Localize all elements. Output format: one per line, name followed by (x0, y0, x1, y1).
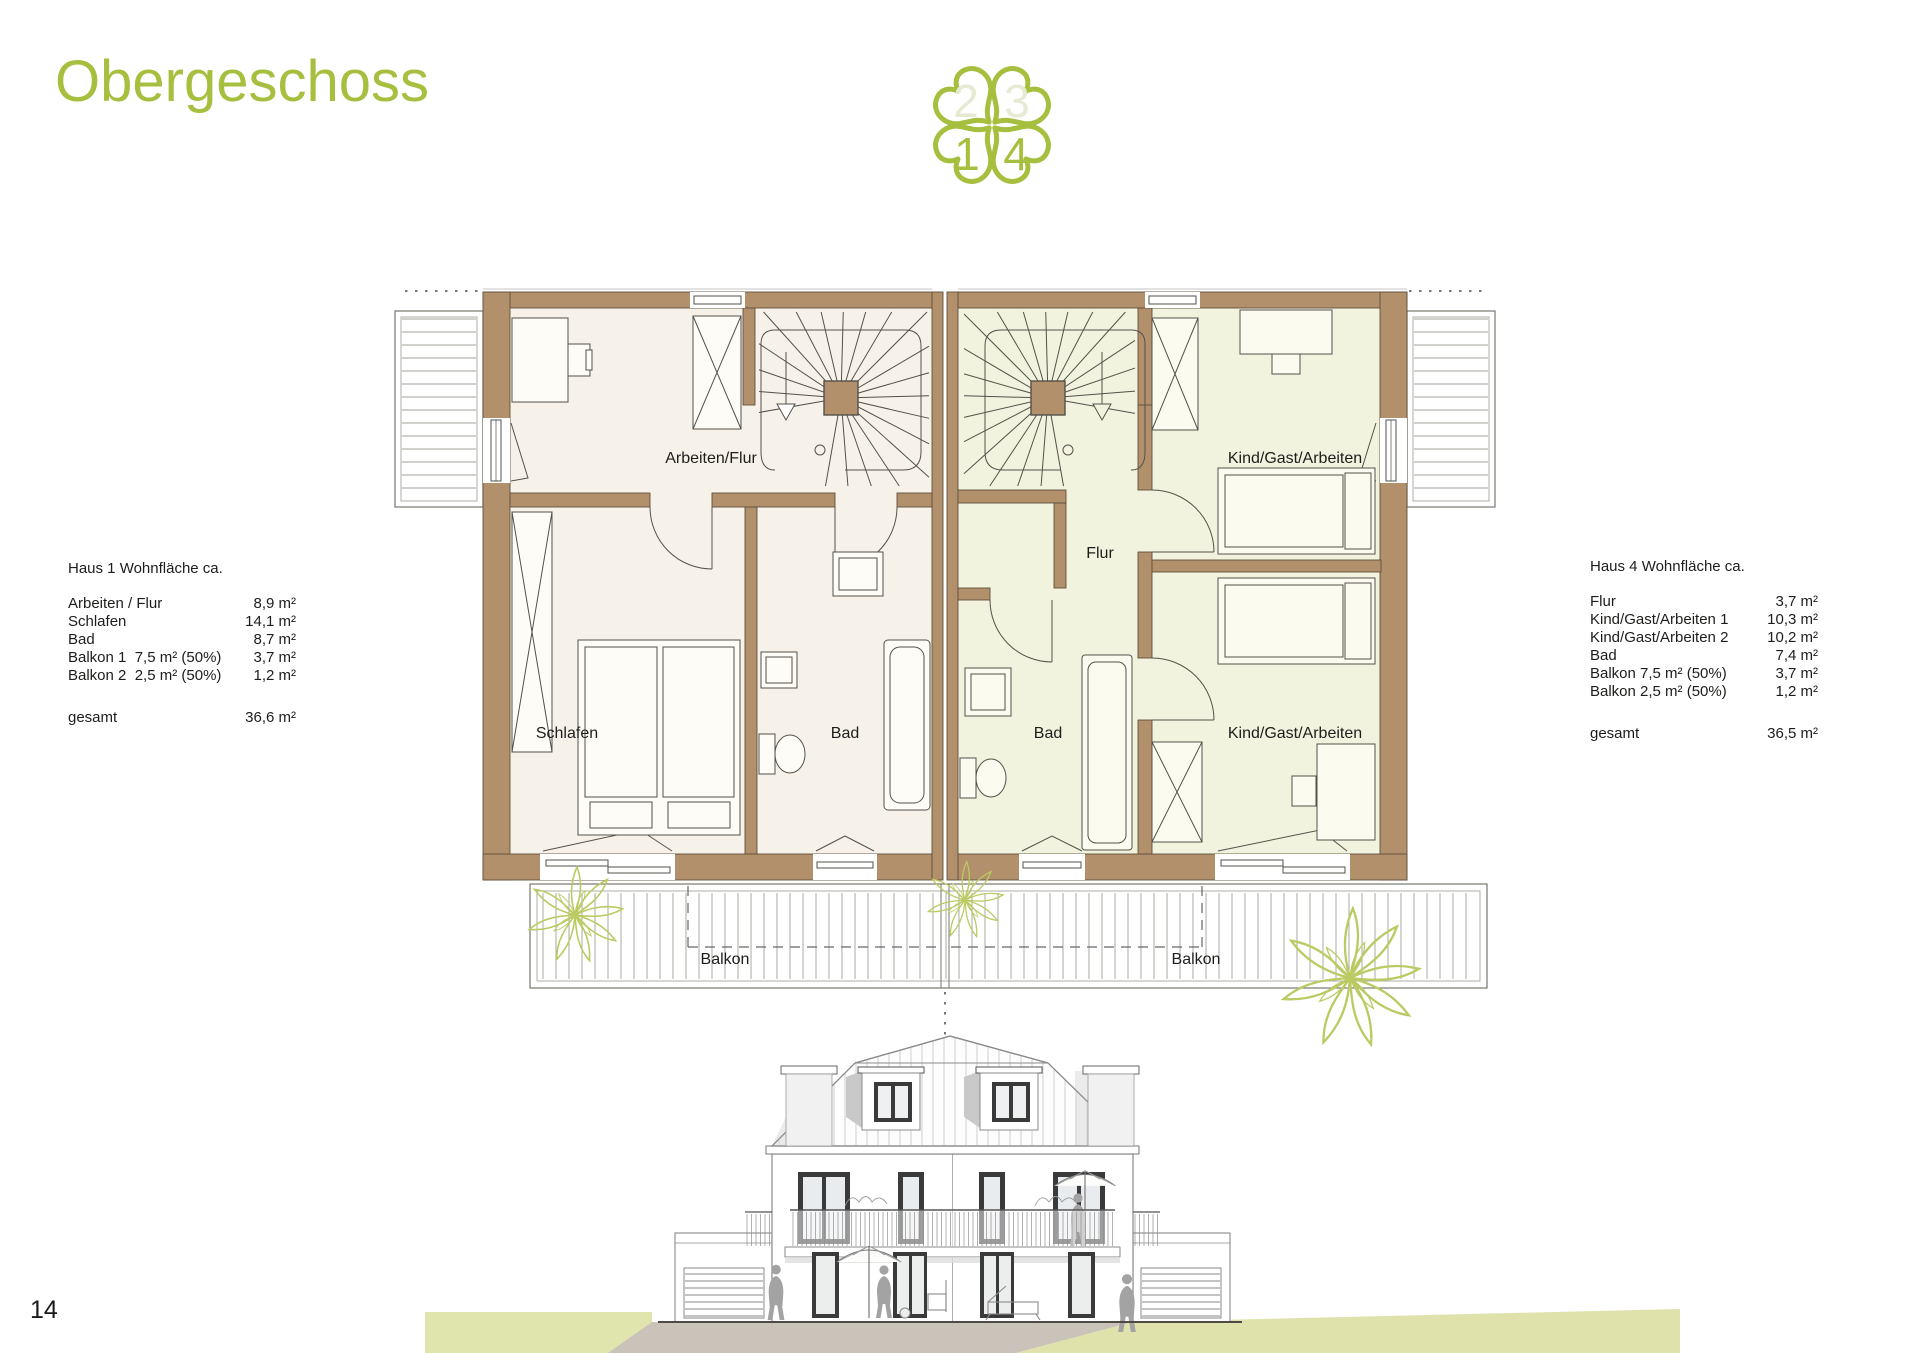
brochure-page: Obergeschoss 2 3 1 4 Haus 1 Wohnfläche c… (0, 0, 1920, 1353)
haus4-side-balcony (1407, 311, 1495, 507)
room-label-bad-haus4: Bad (1034, 725, 1062, 742)
balcony-strip (528, 862, 1487, 1048)
floorplan-and-elevation: Arbeiten/Flur Schlafen Bad Flur Kind/Gas… (0, 0, 1920, 1353)
garage-right (1133, 1233, 1230, 1322)
garage-left (675, 1233, 772, 1322)
room-label-schlafen: Schlafen (536, 725, 598, 742)
mansard-roof (772, 1036, 1139, 1146)
eaves (766, 1146, 1139, 1154)
haus1-side-balcony (395, 311, 483, 507)
floorplan: Arbeiten/Flur Schlafen Bad Flur Kind/Gas… (395, 289, 1495, 1048)
room-label-flur: Flur (1086, 545, 1114, 562)
room-label-arbeiten-flur: Arbeiten/Flur (665, 450, 757, 467)
page-number: 14 (30, 1296, 58, 1325)
room-label-bad-haus1: Bad (831, 725, 859, 742)
room-label-balkon-haus4: Balkon (1172, 951, 1221, 968)
room-label-kind-gast-arbeiten-oben: Kind/Gast/Arbeiten (1228, 450, 1362, 467)
room-label-balkon-haus1: Balkon (701, 951, 750, 968)
building-elevation (425, 1036, 1680, 1353)
room-label-kind-gast-arbeiten-unten: Kind/Gast/Arbeiten (1228, 725, 1362, 742)
